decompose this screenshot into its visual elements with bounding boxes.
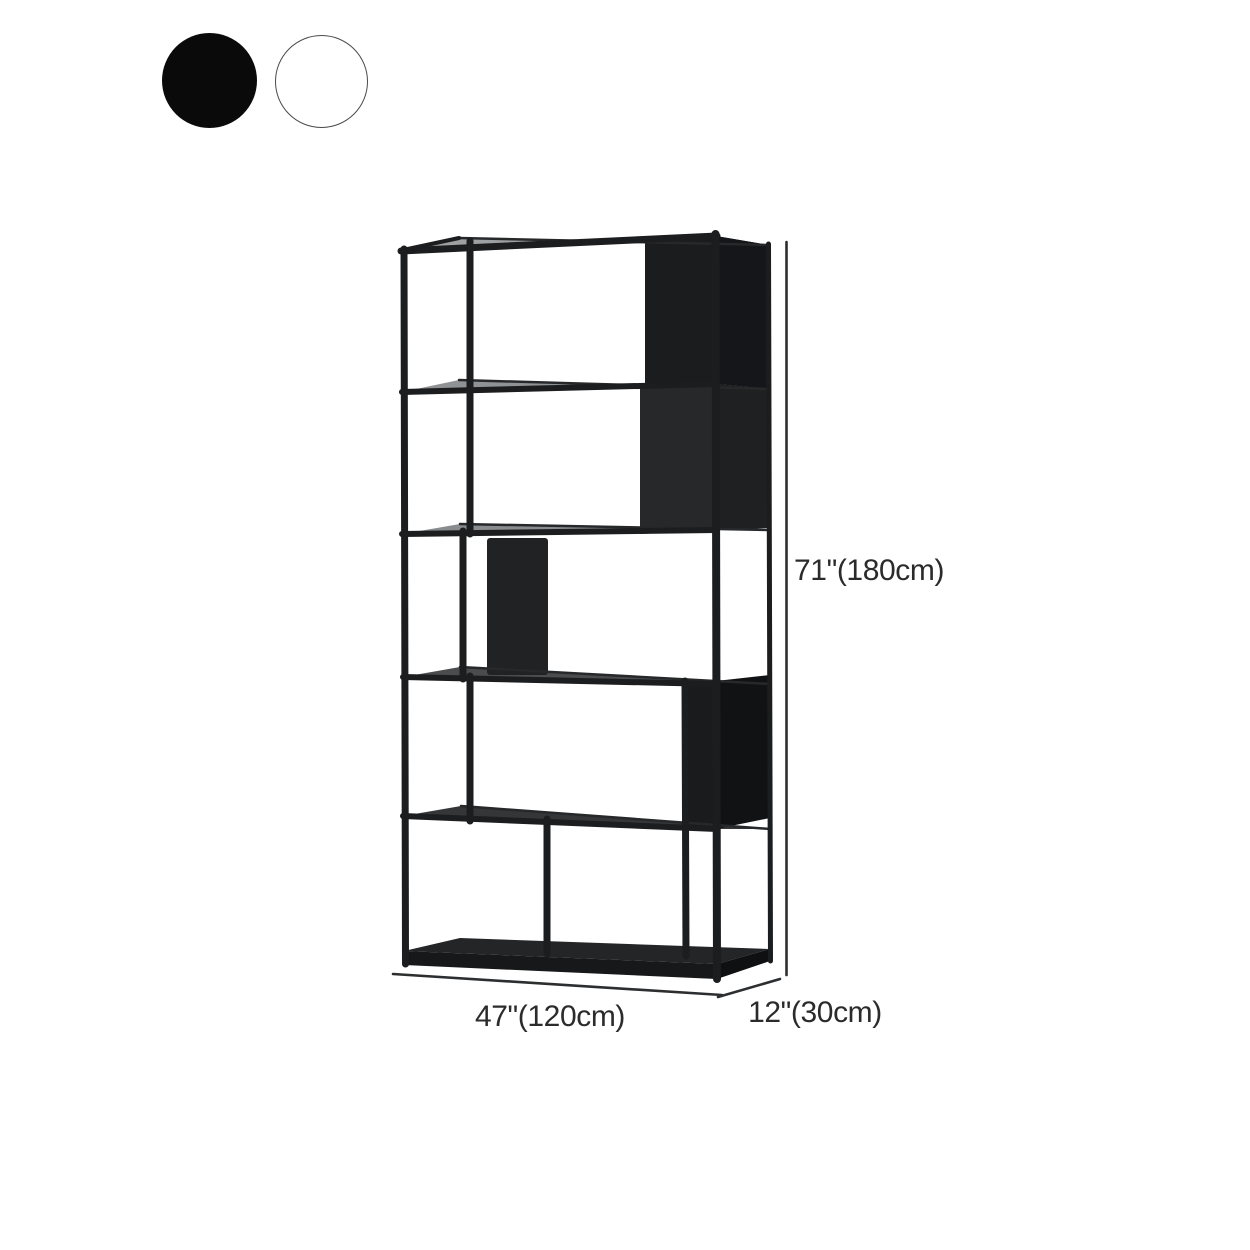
box-tier2-side <box>716 384 770 530</box>
box-tier4-front <box>685 680 716 829</box>
dimension-line-width <box>393 974 722 995</box>
box-tier1-front <box>645 236 716 388</box>
dimension-line-depth <box>718 979 780 997</box>
height-dimension-label: 71"(180cm) <box>794 556 944 586</box>
box-tier1-side <box>716 236 769 389</box>
bookshelf-illustration <box>0 0 1250 1250</box>
box-tier4-side <box>716 675 770 829</box>
box-tier2-front <box>640 384 716 534</box>
product-image-canvas: 71"(180cm) 47"(120cm) 12"(30cm) <box>0 0 1250 1250</box>
product-figure <box>0 0 1250 1250</box>
depth-dimension-label: 12"(30cm) <box>740 998 890 1028</box>
vertical-frames <box>404 234 771 979</box>
box-tier3-front <box>487 538 548 675</box>
width-dimension-label: 47"(120cm) <box>430 1002 670 1032</box>
